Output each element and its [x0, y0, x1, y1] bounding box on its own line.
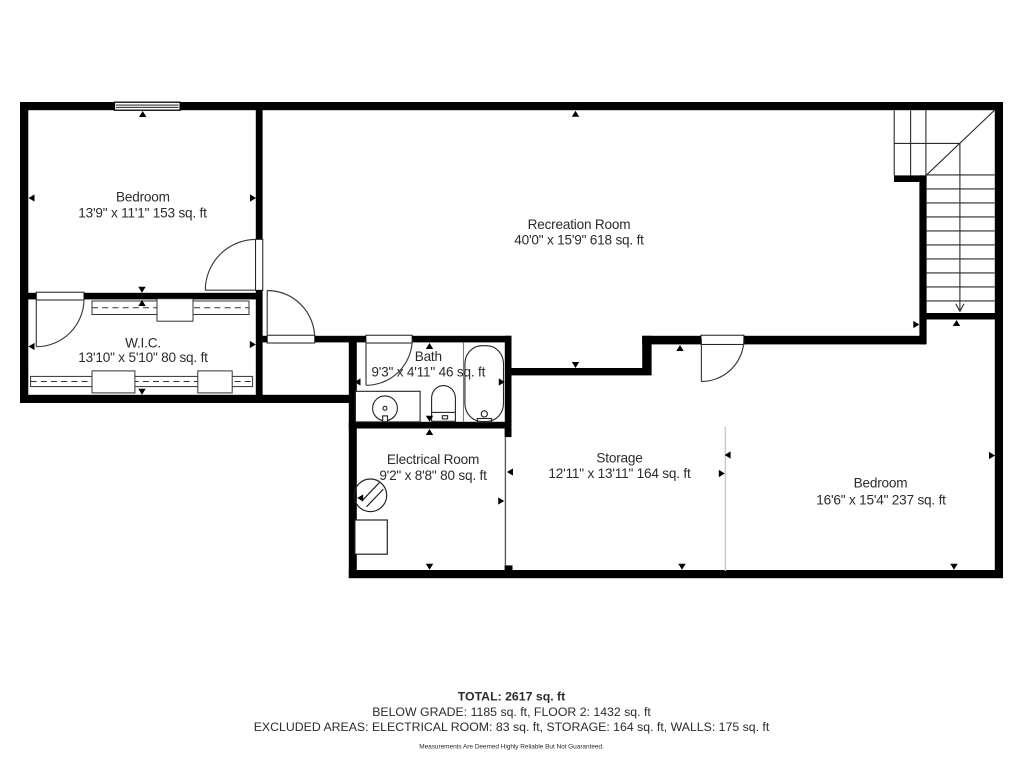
svg-text:12'11" x 13'11" 164 sq. ft: 12'11" x 13'11" 164 sq. ft	[548, 466, 691, 481]
svg-text:40'0" x 15'9" 618 sq. ft: 40'0" x 15'9" 618 sq. ft	[514, 233, 644, 248]
svg-text:TOTAL: 2617 sq. ft: TOTAL: 2617 sq. ft	[458, 689, 566, 703]
svg-text:16'6" x 15'4" 237 sq. ft: 16'6" x 15'4" 237 sq. ft	[816, 493, 946, 508]
svg-text:Bedroom: Bedroom	[116, 190, 170, 205]
svg-text:Measurements Are Deemed Highly: Measurements Are Deemed Highly Reliable …	[419, 743, 604, 750]
svg-text:Bath: Bath	[415, 349, 442, 364]
svg-text:W.I.C.: W.I.C.	[125, 335, 161, 350]
svg-text:BELOW GRADE: 1185 sq. ft, FLOO: BELOW GRADE: 1185 sq. ft, FLOOR 2: 1432 …	[372, 705, 651, 719]
svg-text:9'2" x 8'8" 80 sq. ft: 9'2" x 8'8" 80 sq. ft	[379, 468, 487, 483]
svg-text:Bedroom: Bedroom	[854, 476, 908, 491]
svg-text:13'9" x 11'1" 153 sq. ft: 13'9" x 11'1" 153 sq. ft	[78, 205, 207, 220]
svg-text:Electrical Room: Electrical Room	[387, 452, 479, 467]
svg-text:EXCLUDED AREAS: ELECTRICAL ROO: EXCLUDED AREAS: ELECTRICAL ROOM: 83 sq. …	[254, 720, 770, 734]
svg-text:Recreation Room: Recreation Room	[528, 217, 631, 232]
svg-text:13'10" x 5'10" 80 sq. ft: 13'10" x 5'10" 80 sq. ft	[78, 350, 208, 365]
svg-text:9'3" x 4'11" 46 sq. ft: 9'3" x 4'11" 46 sq. ft	[371, 364, 485, 379]
svg-text:Storage: Storage	[596, 450, 642, 465]
